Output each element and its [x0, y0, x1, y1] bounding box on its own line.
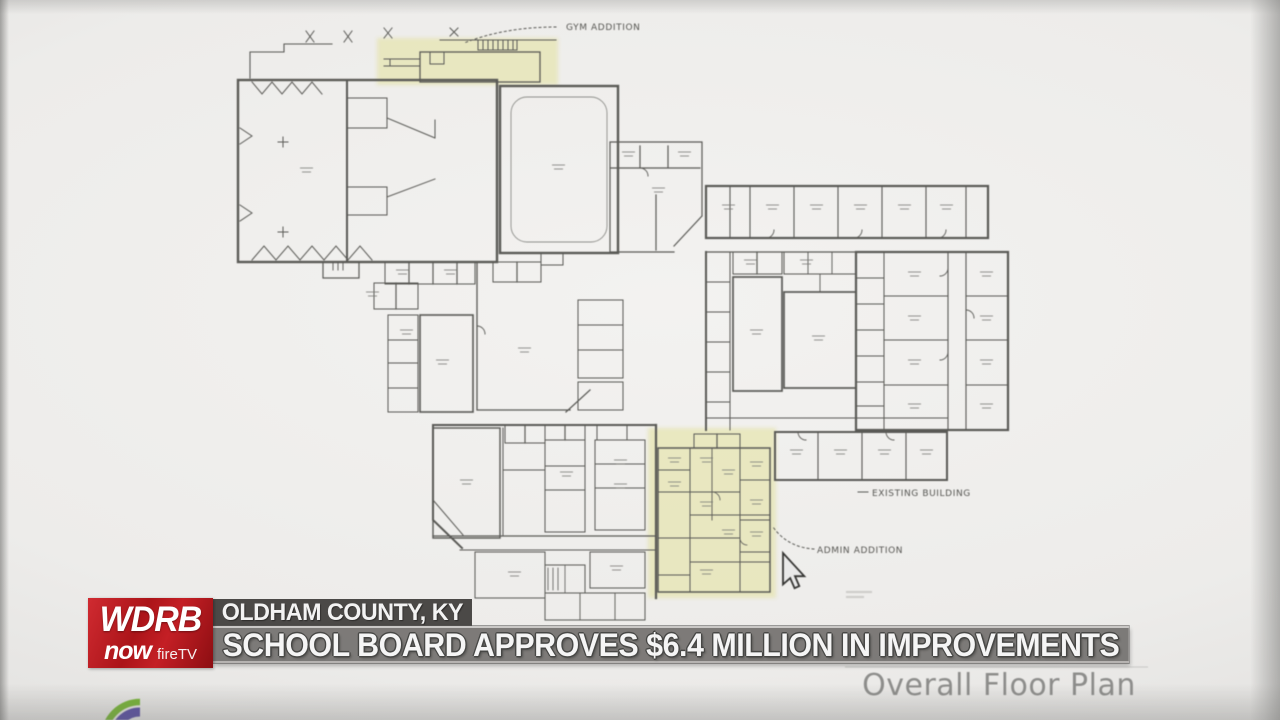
auditorium-block [238, 80, 497, 278]
room-label-marks [300, 152, 993, 576]
bottom-left-wing [433, 425, 656, 620]
station-name: WDRB [100, 602, 202, 637]
left-center-block [374, 262, 623, 412]
gym-addition-label: GYM ADDITION [566, 23, 641, 33]
central-block [706, 252, 948, 430]
floor-plan-title: Overall Floor Plan [856, 668, 1142, 703]
connector-block [610, 142, 702, 252]
highlight-areas [377, 38, 776, 598]
top-classroom-row [706, 186, 988, 252]
slide-logo-swirl [104, 702, 140, 720]
bottom-classroom-row [775, 432, 947, 480]
wdrb-logo: WDRB now fireTV [88, 598, 213, 668]
station-platform: now [104, 639, 151, 664]
location-tag: OLDHAM COUNTY, KY [213, 599, 472, 626]
tv-frame: GYM ADDITION EXISTING BUILDING ADMIN ADD… [0, 0, 1280, 720]
station-device: fireTV [157, 646, 197, 663]
station-subline: now fireTV [104, 639, 197, 664]
admin-addition-label: ADMIN ADDITION [817, 546, 903, 556]
existing-building-label: EXISTING BUILDING [872, 489, 971, 499]
mouse-cursor-icon [783, 553, 804, 588]
right-classroom-wing [856, 252, 1008, 430]
gym-block [500, 86, 618, 265]
headline-bar: SCHOOL BOARD APPROVES $6.4 MILLION IN IM… [213, 626, 1129, 663]
